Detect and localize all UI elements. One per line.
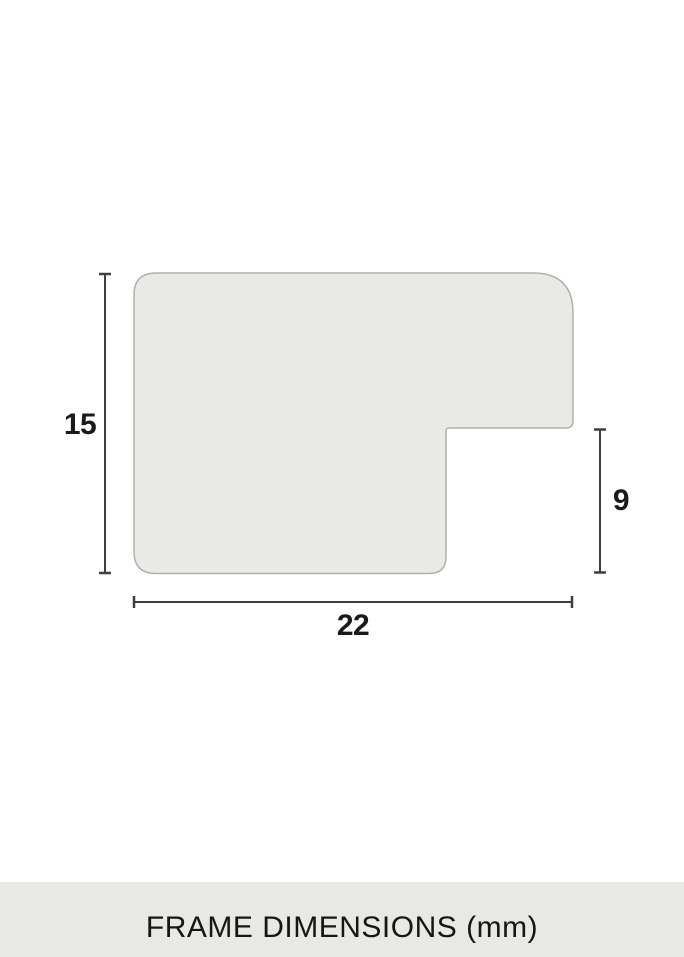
frame-profile-shape [134,273,573,574]
width-dimension-line [133,596,573,608]
frame-profile-diagram: 15 9 22 FRAME DIMENSIONS (mm) [0,0,684,957]
profile-diagram-svg [0,0,684,957]
footer-caption: FRAME DIMENSIONS (mm) [146,913,538,943]
footer-band: FRAME DIMENSIONS (mm) [0,882,684,957]
height-dimension-line [99,273,111,574]
rebate-dimension-label: 9 [613,486,629,516]
width-dimension-label: 22 [337,611,369,641]
height-dimension-label: 15 [64,410,96,440]
rebate-dimension-line [594,429,606,573]
